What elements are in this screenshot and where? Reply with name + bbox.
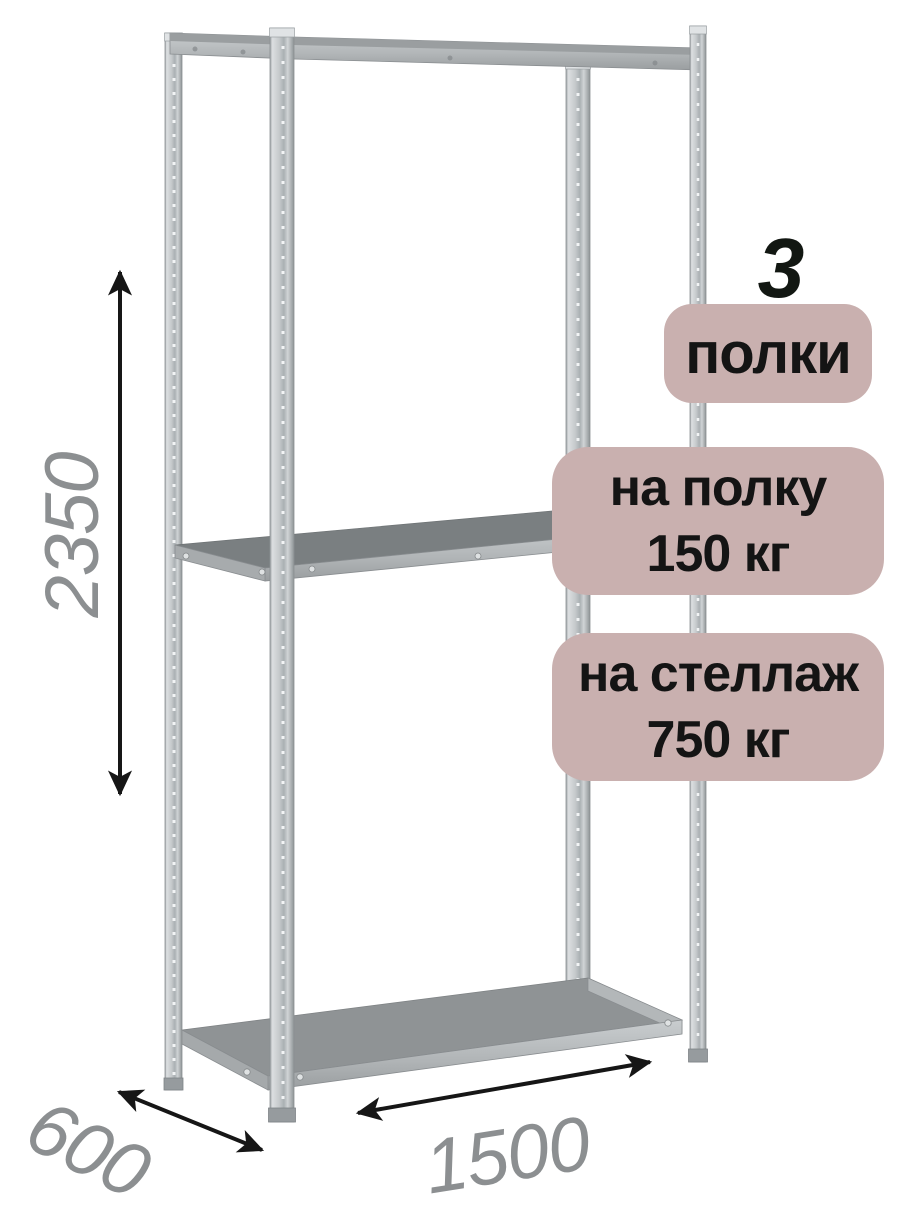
shelving-rack-illustration	[0, 0, 900, 1200]
per-shelf-load-badge: на полку 150 кг	[552, 447, 884, 595]
product-image: 2350 600 1500 3 полки на полку 150 кг на…	[0, 0, 900, 1200]
per-rack-load-line1: на стеллаж	[578, 641, 858, 707]
per-rack-load-line2: 750 кг	[647, 707, 790, 773]
rack-post-front-left	[269, 28, 296, 1122]
rack-shelf-top	[170, 33, 700, 70]
per-shelf-load-line1: на полку	[610, 455, 827, 521]
rack-post-back-left	[164, 33, 183, 1090]
shelf-count-value: 3	[718, 224, 842, 312]
per-shelf-load-line2: 150 кг	[647, 521, 790, 587]
rack-shelf-bottom	[182, 978, 682, 1090]
shelf-count-badge: полки	[664, 304, 872, 403]
per-rack-load-badge: на стеллаж 750 кг	[552, 633, 884, 781]
shelf-count-badge-label: полки	[685, 320, 851, 387]
height-dimension-label: 2350	[30, 449, 114, 621]
